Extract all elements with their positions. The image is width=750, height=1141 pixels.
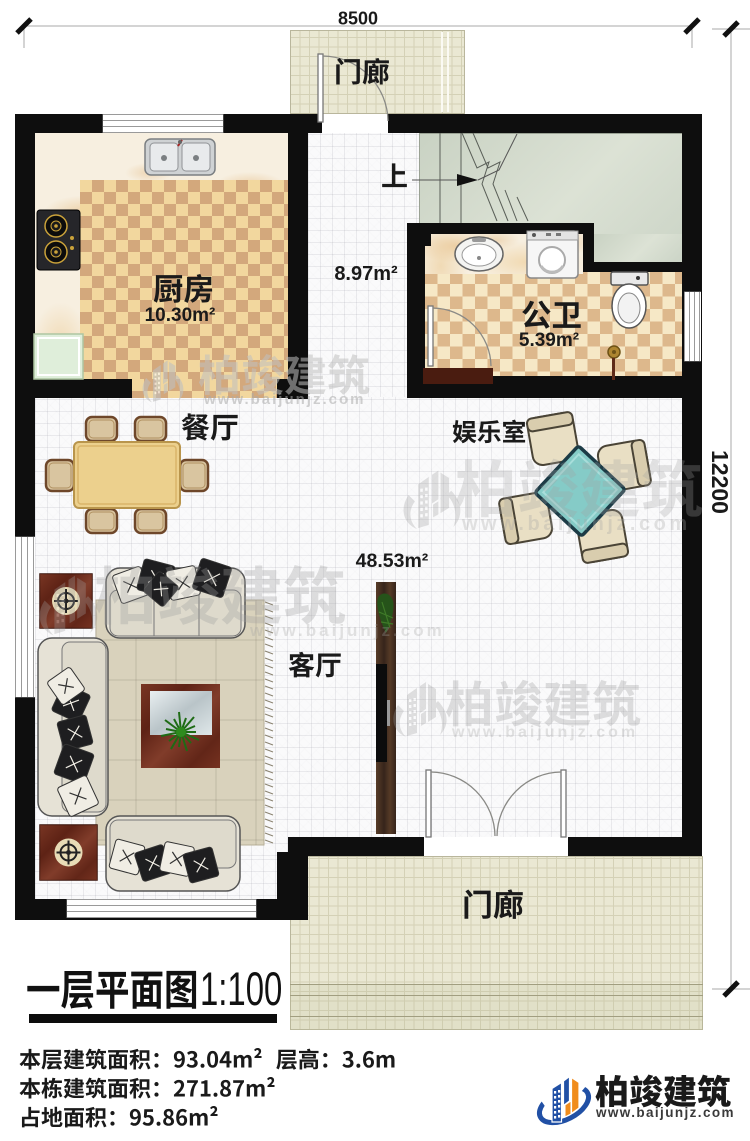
svg-text:www.baijunjz.com: www.baijunjz.com	[451, 724, 638, 741]
svg-text:www.baijunjz.com: www.baijunjz.com	[461, 513, 691, 535]
svg-text:8.97m²: 8.97m²	[334, 263, 398, 285]
svg-text:5.39m²: 5.39m²	[519, 330, 579, 351]
svg-text:www.baijunjz.com: www.baijunjz.com	[203, 391, 365, 408]
svg-text:48.53m²: 48.53m²	[356, 550, 429, 572]
svg-text:10.30m²: 10.30m²	[145, 305, 216, 326]
svg-text:www.baijunjz.com: www.baijunjz.com	[249, 621, 445, 640]
svg-text:1:100: 1:100	[200, 962, 282, 1015]
svg-text:www.baijunjz.com: www.baijunjz.com	[595, 1105, 735, 1120]
svg-text:8500: 8500	[338, 9, 378, 29]
svg-text:12200: 12200	[707, 450, 733, 514]
